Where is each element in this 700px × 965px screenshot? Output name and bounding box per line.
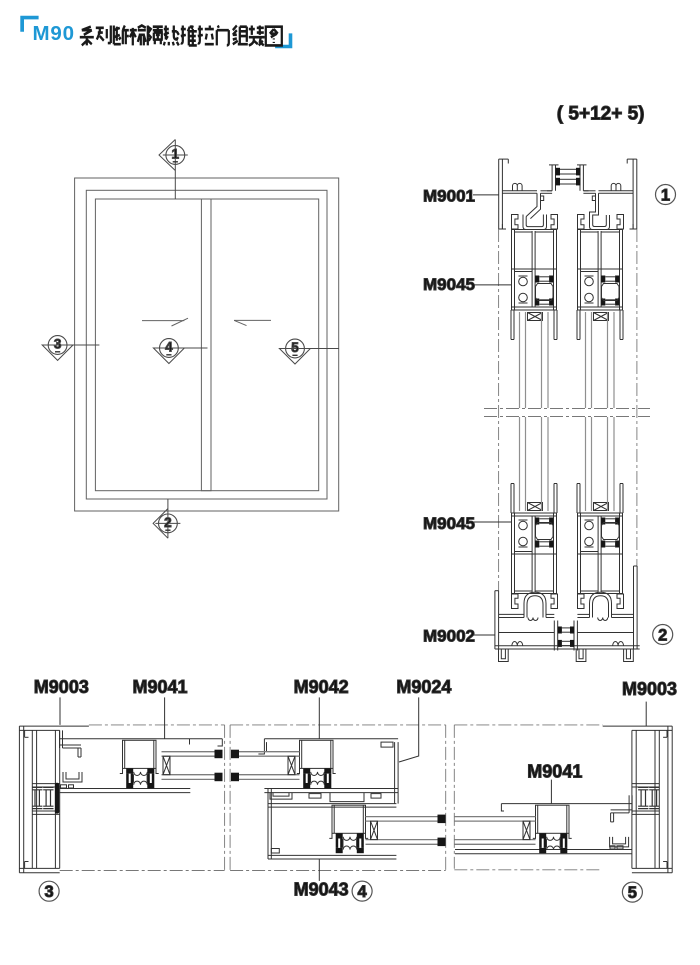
svg-text:M90: M90 — [33, 22, 75, 45]
svg-text:2: 2 — [164, 515, 172, 530]
svg-text:5: 5 — [628, 884, 637, 902]
svg-text:2: 2 — [658, 627, 667, 645]
svg-text:M9041: M9041 — [527, 762, 582, 782]
svg-text:M9041: M9041 — [133, 677, 188, 697]
svg-text:M9002: M9002 — [423, 627, 475, 646]
svg-text:M9045: M9045 — [423, 514, 475, 533]
svg-text:M9045: M9045 — [423, 275, 475, 294]
svg-text:M9024: M9024 — [396, 677, 451, 697]
svg-text:M9001: M9001 — [423, 187, 475, 206]
svg-text:M9043: M9043 — [294, 880, 349, 900]
svg-text:M9003: M9003 — [622, 679, 677, 699]
svg-text:4: 4 — [358, 883, 368, 901]
svg-text:3: 3 — [45, 883, 54, 901]
svg-text:( 5+12+ 5): ( 5+12+ 5) — [557, 104, 645, 125]
svg-text:5: 5 — [291, 340, 299, 355]
svg-text:1: 1 — [172, 147, 180, 162]
svg-text:1: 1 — [661, 187, 670, 205]
svg-text:M9003: M9003 — [34, 677, 89, 697]
svg-text:4: 4 — [165, 340, 173, 355]
svg-text:M9042: M9042 — [294, 677, 349, 697]
svg-text:3: 3 — [54, 337, 62, 352]
